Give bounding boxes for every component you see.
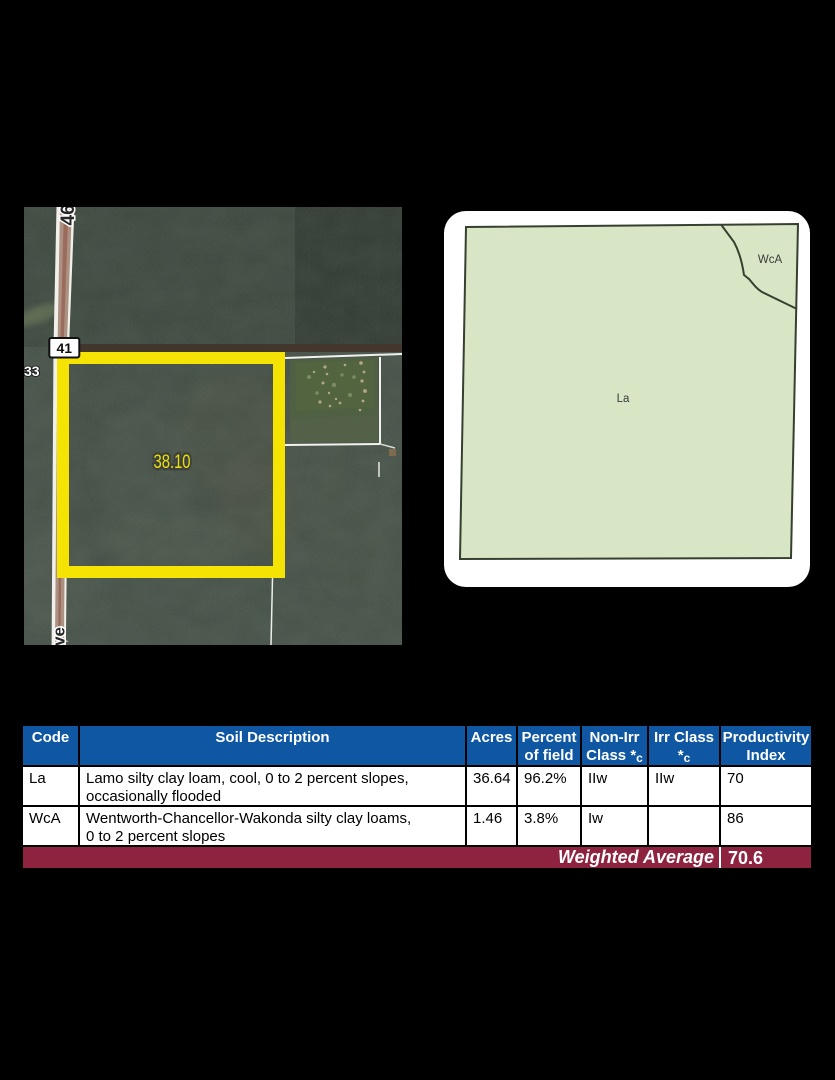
svg-text:41: 41 xyxy=(57,340,73,356)
svg-text:33: 33 xyxy=(24,363,40,379)
svg-text:46: 46 xyxy=(58,207,79,226)
svg-text:38.10: 38.10 xyxy=(154,451,191,472)
svg-text:ve: ve xyxy=(50,627,69,645)
svg-text:La: La xyxy=(617,393,630,405)
svg-text:WcA: WcA xyxy=(758,254,783,266)
